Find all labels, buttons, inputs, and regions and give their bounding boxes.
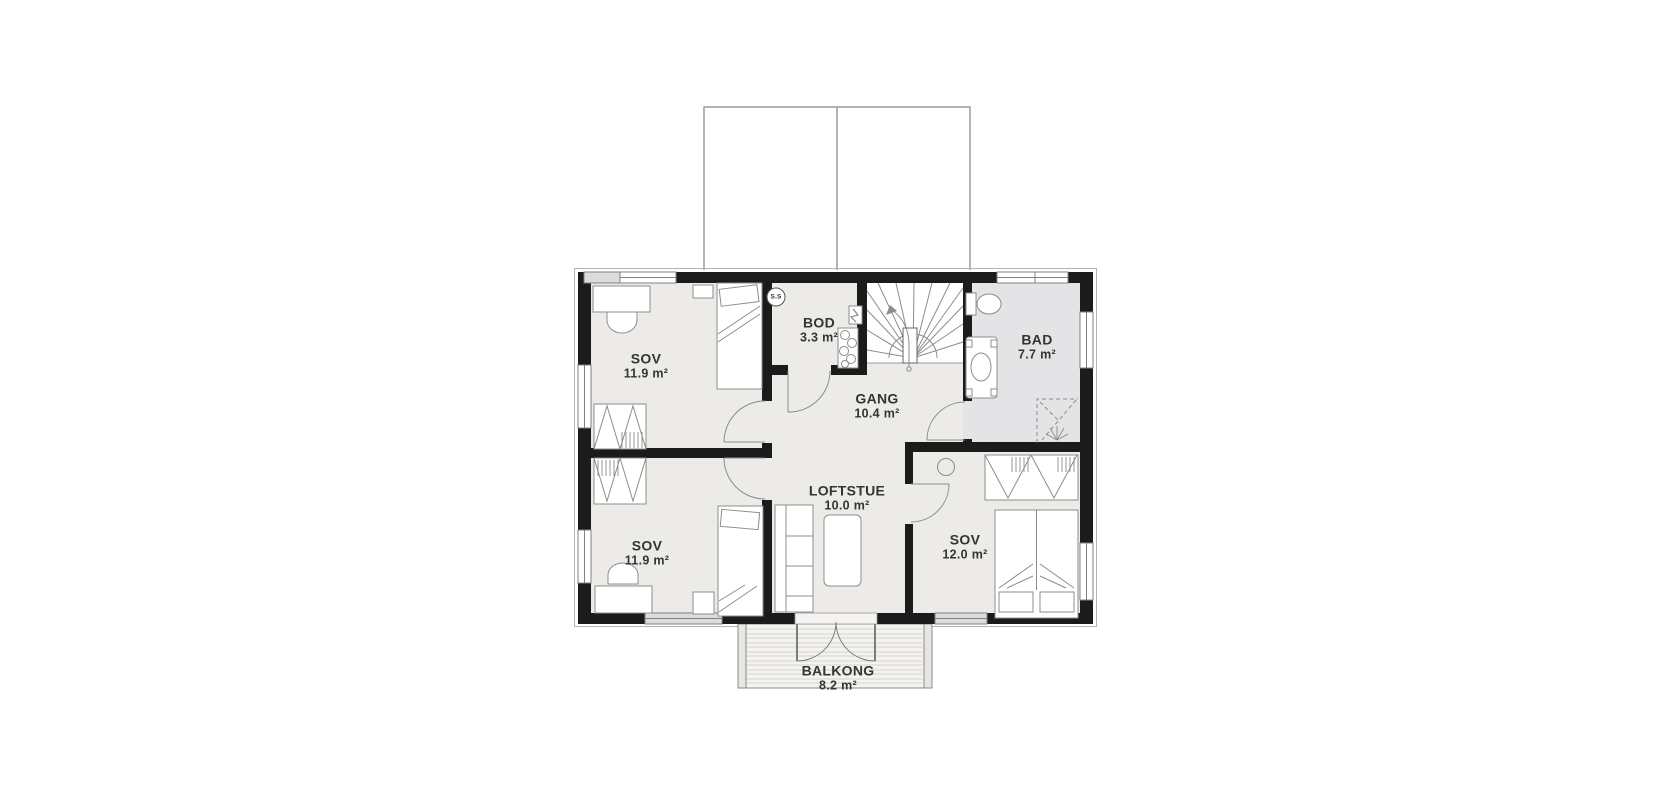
chair-icon	[608, 563, 638, 584]
floor-plan-canvas: SOV 11.9 m² SOV 11.9 m² BOD 3.3 m² GANG …	[0, 0, 1670, 800]
balcony-rail-left	[738, 624, 746, 688]
wardrobe-icon	[594, 404, 646, 449]
sink-icon	[966, 337, 997, 398]
wardrobe-icon	[985, 455, 1078, 500]
window-left-sov2	[578, 530, 591, 583]
balcony-deck	[738, 624, 932, 688]
window-top-bad	[997, 272, 1068, 283]
bed-icon	[718, 506, 763, 616]
desk-icon	[595, 586, 652, 613]
rug-icon	[693, 592, 714, 614]
chair-icon	[607, 312, 637, 333]
bed-icon	[717, 283, 762, 389]
dormer-outline	[704, 107, 970, 270]
nightstand-icon	[693, 285, 713, 298]
coffee-table-icon	[824, 515, 861, 586]
window-right-bad	[1080, 312, 1093, 368]
balcony-rail-right	[924, 624, 932, 688]
shelf-icon	[775, 505, 813, 612]
toilet-icon	[966, 293, 1001, 315]
water-heater-icon	[838, 328, 858, 368]
wardrobe-icon	[594, 458, 646, 504]
window-top-corner	[584, 272, 620, 283]
window-bottom-sov2	[645, 613, 722, 624]
window-bottom-sov3	[935, 613, 987, 624]
double-bed-icon	[995, 510, 1078, 618]
sensor-badge	[767, 288, 785, 306]
floor-plan-drawing	[0, 0, 1670, 800]
desk-icon	[593, 286, 650, 312]
electrical-panel-icon	[849, 306, 862, 324]
window-top-sov1	[620, 272, 676, 283]
window-left-sov1	[578, 365, 591, 428]
window-right-sov3	[1080, 543, 1093, 600]
